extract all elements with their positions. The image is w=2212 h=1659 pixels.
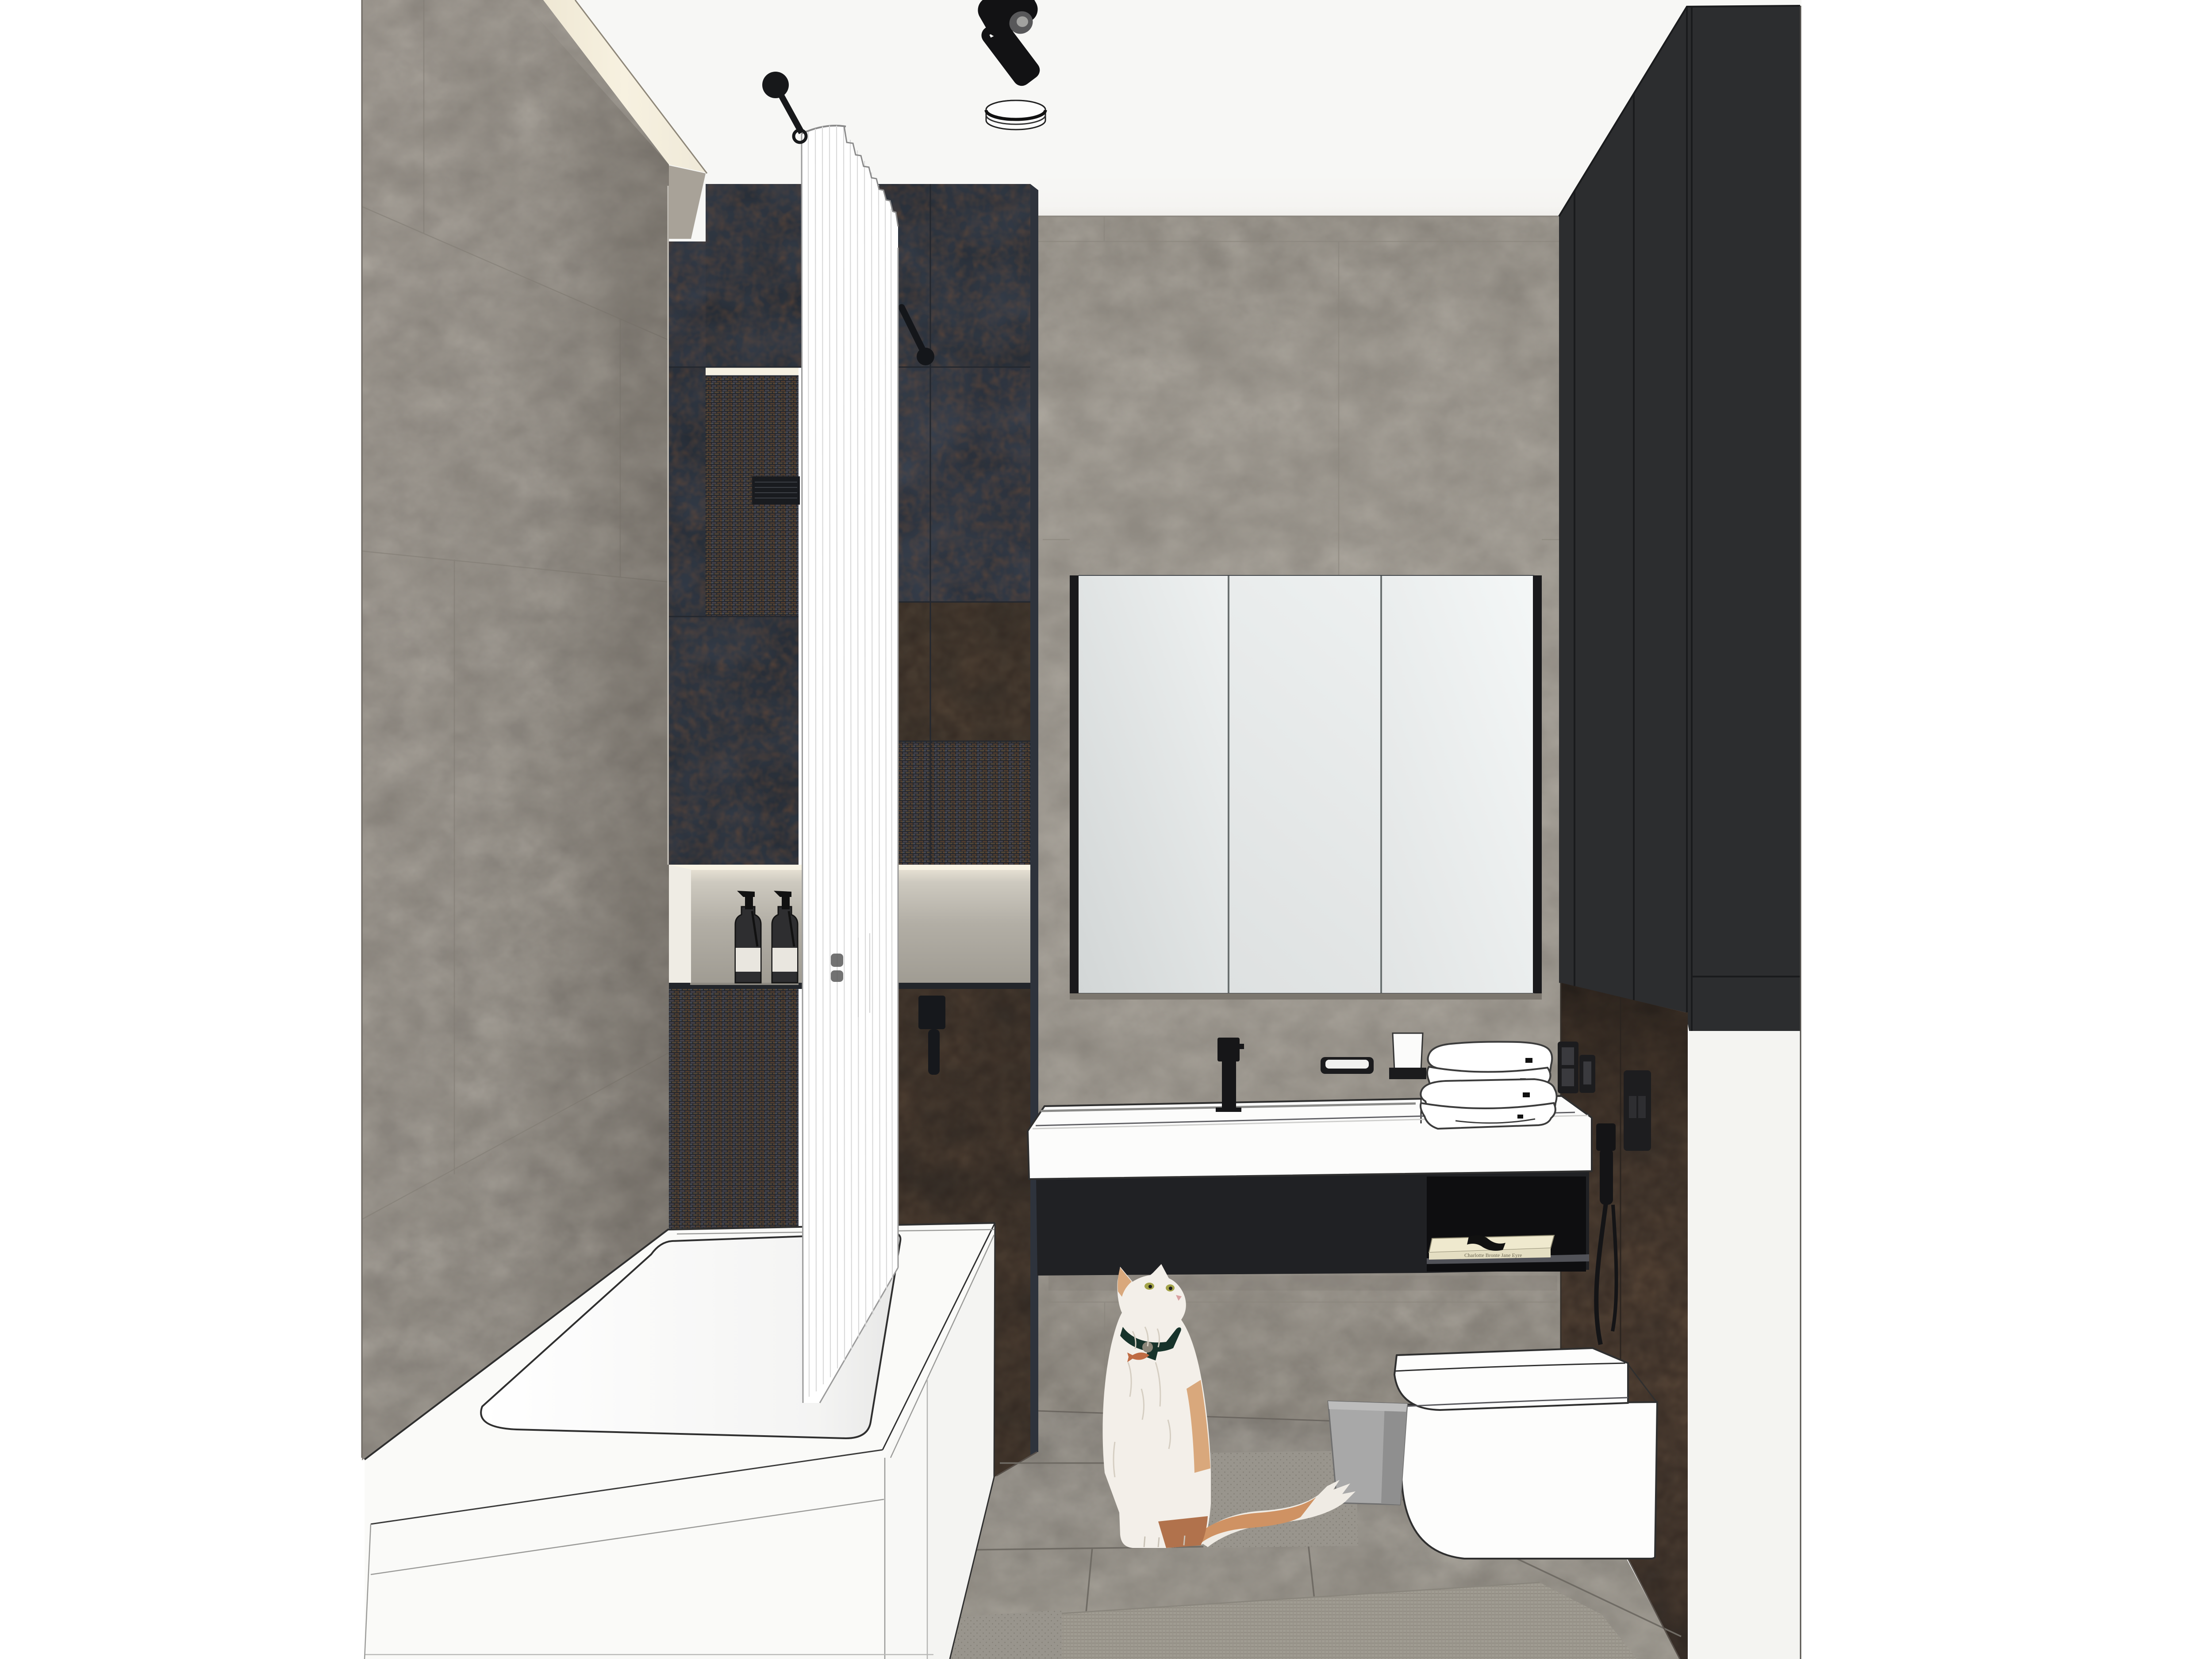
svg-text:Charlotte Bronte Jane Eyre: Charlotte Bronte Jane Eyre (1464, 1252, 1522, 1258)
